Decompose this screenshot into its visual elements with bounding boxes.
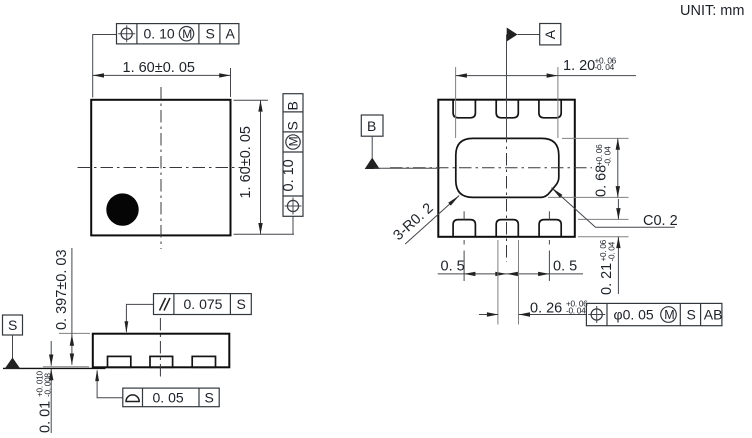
svg-text:1. 60±0. 05: 1. 60±0. 05 bbox=[123, 60, 195, 76]
svg-text:0. 397±0. 03: 0. 397±0. 03 bbox=[54, 249, 70, 330]
svg-text:AB: AB bbox=[704, 307, 723, 323]
svg-text:0. 26: 0. 26 bbox=[530, 301, 562, 317]
svg-text:M: M bbox=[287, 136, 301, 146]
svg-text:0. 10: 0. 10 bbox=[144, 26, 175, 42]
svg-text:0. 5: 0. 5 bbox=[441, 259, 465, 275]
svg-text:M: M bbox=[182, 27, 192, 41]
svg-text:-0. 04: -0. 04 bbox=[603, 146, 613, 166]
svg-text:S: S bbox=[8, 317, 17, 333]
svg-text:-0. 04: -0. 04 bbox=[566, 306, 586, 316]
svg-text:B: B bbox=[367, 118, 376, 134]
svg-text:S: S bbox=[206, 26, 215, 42]
svg-text:0. 10: 0. 10 bbox=[281, 159, 297, 191]
svg-text:C0. 2: C0. 2 bbox=[643, 213, 678, 229]
svg-text:0. 5: 0. 5 bbox=[553, 259, 577, 275]
svg-text:0. 01: 0. 01 bbox=[38, 401, 54, 433]
svg-text:S: S bbox=[687, 307, 696, 323]
svg-text:1. 20: 1. 20 bbox=[563, 58, 595, 74]
svg-text:0. 68: 0. 68 bbox=[594, 165, 610, 197]
svg-text:0. 21: 0. 21 bbox=[599, 263, 615, 295]
svg-text:1. 60±0. 05: 1. 60±0. 05 bbox=[238, 126, 254, 198]
svg-text:0. 05: 0. 05 bbox=[153, 390, 184, 406]
svg-text:B: B bbox=[285, 101, 301, 110]
svg-text:0. 075: 0. 075 bbox=[184, 296, 223, 312]
svg-text:-0. 04: -0. 04 bbox=[607, 241, 617, 261]
svg-text:S: S bbox=[285, 121, 301, 130]
svg-text:-0. 04: -0. 04 bbox=[595, 62, 615, 72]
svg-text:-0. 008: -0. 008 bbox=[43, 373, 53, 397]
svg-text:A: A bbox=[542, 29, 558, 39]
svg-text:S: S bbox=[237, 296, 246, 312]
svg-text:A: A bbox=[226, 26, 236, 42]
svg-text:φ0. 05: φ0. 05 bbox=[614, 307, 654, 323]
svg-text:S: S bbox=[205, 390, 214, 406]
svg-text:M: M bbox=[664, 308, 674, 322]
svg-text:UNIT: mm: UNIT: mm bbox=[680, 3, 744, 19]
